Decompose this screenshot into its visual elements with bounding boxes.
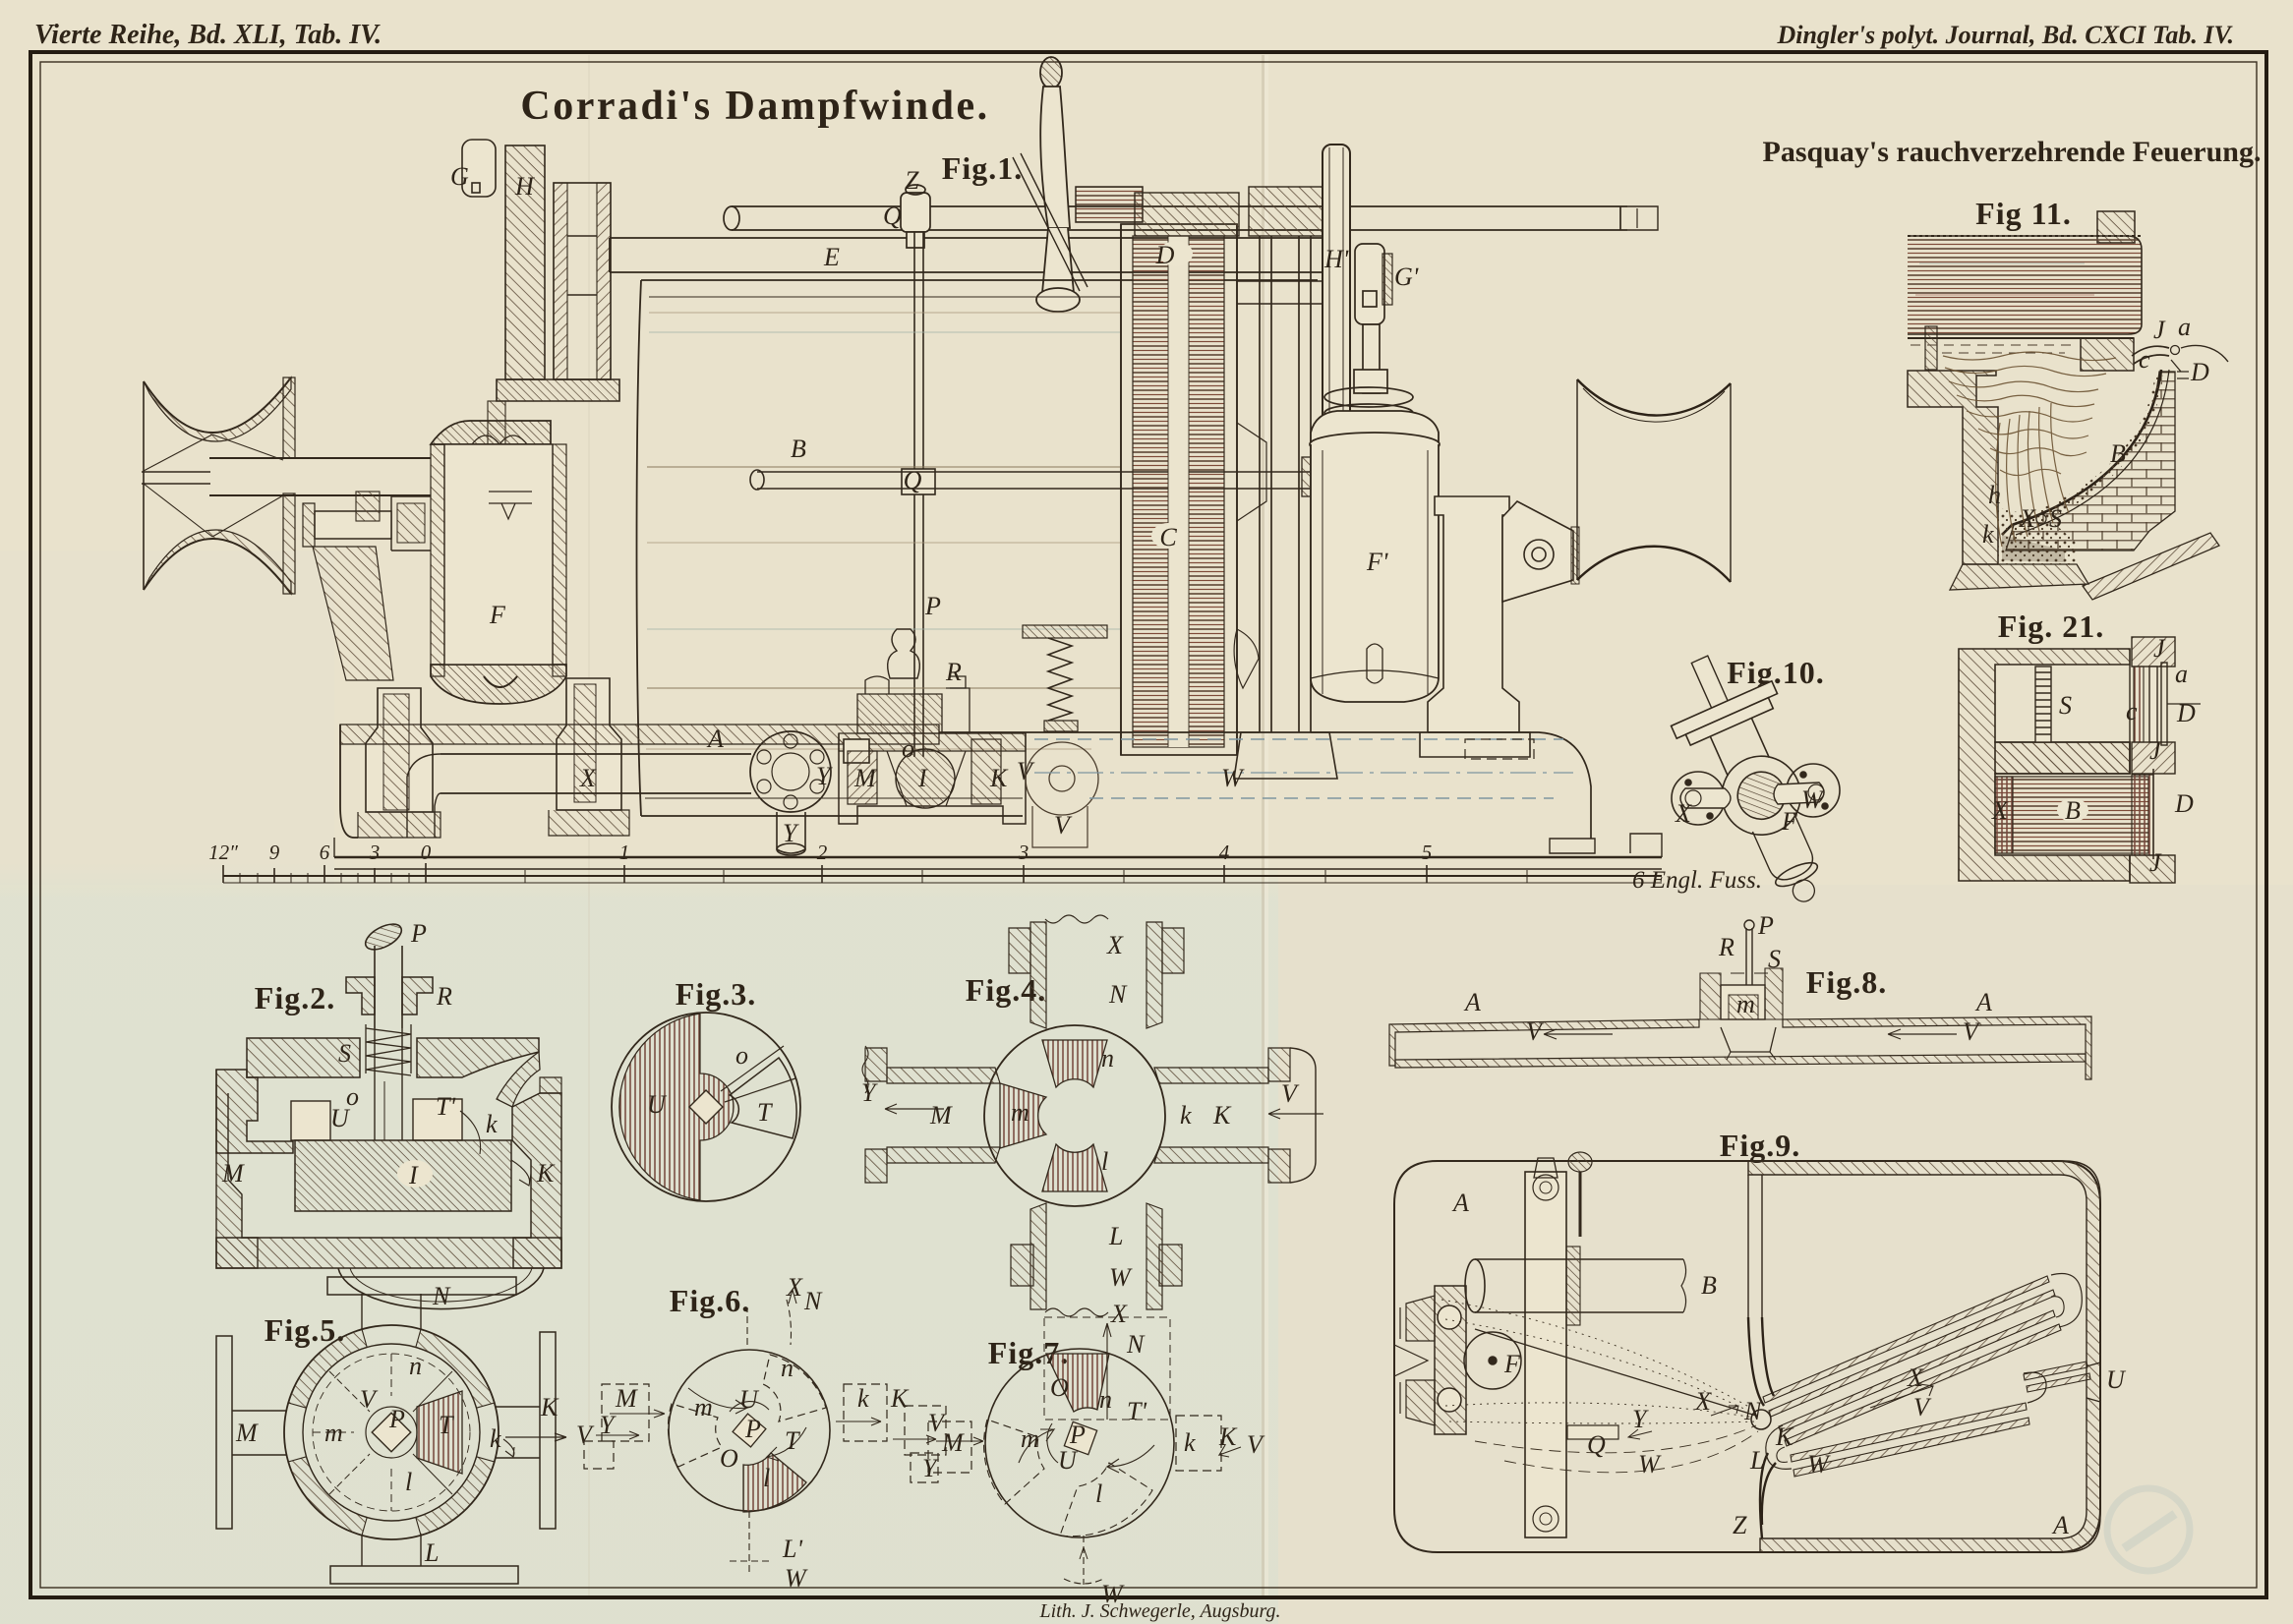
svg-text:K: K [1212, 1101, 1232, 1130]
svg-text:A: A [1451, 1189, 1469, 1217]
svg-text:Lʹ: Lʹ [782, 1535, 802, 1563]
svg-text:F: F [489, 601, 506, 629]
svg-text:R: R [1718, 933, 1734, 961]
svg-text:h: h [1988, 481, 2001, 509]
svg-text:N: N [1743, 1397, 1763, 1425]
svg-text:o: o [902, 734, 914, 763]
svg-text:l: l [1095, 1479, 1102, 1508]
svg-text:F: F [1781, 807, 1798, 836]
svg-text:Y: Y [816, 762, 833, 790]
svg-text:n: n [781, 1354, 794, 1382]
svg-text:P: P [1757, 911, 1774, 940]
svg-text:P: P [924, 592, 941, 620]
svg-text:X: X [1675, 799, 1692, 828]
svg-text:c: c [2126, 697, 2138, 725]
svg-text:F: F [1503, 1350, 1521, 1378]
svg-text:X: X [1110, 1300, 1128, 1328]
svg-text:C: C [1159, 523, 1177, 551]
svg-text:I: I [917, 764, 928, 792]
svg-text:Corradi's Dampfwinde.: Corradi's Dampfwinde. [520, 84, 989, 129]
svg-text:m: m [694, 1393, 713, 1421]
svg-text:m: m [324, 1419, 343, 1447]
svg-text:Q: Q [883, 202, 902, 230]
svg-text:U: U [647, 1090, 668, 1119]
svg-text:k: k [1180, 1101, 1192, 1130]
svg-text:k: k [1982, 520, 1994, 549]
svg-text:Y: Y [783, 819, 799, 847]
svg-text:B: B [2110, 439, 2126, 468]
svg-text:L: L [424, 1538, 439, 1567]
svg-text:Fʹ: Fʹ [1366, 548, 1388, 576]
svg-text:D: D [2174, 789, 2194, 818]
svg-text:M: M [941, 1428, 965, 1457]
svg-text:W: W [1109, 1263, 1133, 1292]
svg-text:U: U [2106, 1365, 2127, 1394]
svg-text:n: n [409, 1352, 422, 1380]
svg-text:M: M [235, 1419, 259, 1447]
svg-text:N: N [432, 1282, 451, 1310]
svg-text:k: k [1184, 1428, 1196, 1457]
svg-text:Z: Z [1733, 1511, 1747, 1539]
svg-text:W: W [1221, 764, 1245, 792]
svg-text:A: A [1974, 988, 1992, 1016]
svg-text:R: R [436, 982, 452, 1011]
svg-text:P: P [410, 919, 427, 948]
svg-text:Fig.8.: Fig.8. [1806, 964, 1887, 1000]
svg-text:R: R [945, 658, 962, 686]
svg-text:W: W [1638, 1450, 1662, 1479]
svg-text:6: 6 [320, 841, 330, 864]
svg-text:G: G [450, 162, 469, 191]
svg-text:a: a [2175, 660, 2188, 688]
svg-text:M: M [221, 1159, 245, 1188]
svg-text:Tʹ: Tʹ [436, 1092, 455, 1121]
svg-text:P: P [744, 1415, 761, 1443]
svg-text:Fig.1.: Fig.1. [942, 150, 1023, 186]
svg-text:Q: Q [904, 466, 922, 494]
svg-text:Lith. J. Schwegerle, Augsburg.: Lith. J. Schwegerle, Augsburg. [1039, 1600, 1281, 1622]
svg-text:Fig.3.: Fig.3. [676, 976, 756, 1012]
svg-text:B: B [1701, 1271, 1717, 1300]
svg-text:K: K [989, 764, 1009, 792]
svg-text:X: X [1991, 796, 2009, 825]
svg-text:M: M [853, 764, 877, 792]
svg-text:J: J [2153, 634, 2166, 663]
svg-text:D: D [2176, 699, 2196, 727]
svg-text:E: E [823, 243, 840, 271]
svg-text:D: D [2190, 358, 2209, 386]
svg-text:U: U [739, 1385, 760, 1414]
svg-text:X: X [786, 1273, 803, 1302]
svg-text:n: n [1099, 1385, 1112, 1414]
svg-text:o: o [735, 1041, 748, 1070]
svg-text:Fig.9.: Fig.9. [1720, 1128, 1800, 1163]
svg-text:Tʹ: Tʹ [1127, 1397, 1146, 1425]
svg-text:Q: Q [1587, 1430, 1606, 1459]
svg-text:Fig 11.: Fig 11. [1975, 196, 2072, 231]
svg-text:U: U [1058, 1446, 1079, 1475]
svg-text:Dingler's polyt. Journal, Bd.: Dingler's polyt. Journal, Bd. CXCI Tab. … [1776, 21, 2234, 49]
svg-text:D: D [1155, 241, 1175, 269]
svg-text:K: K [1775, 1422, 1794, 1451]
svg-text:O: O [720, 1444, 738, 1473]
svg-text:X: X [579, 764, 597, 792]
svg-text:Z: Z [905, 166, 919, 195]
svg-text:l: l [763, 1464, 770, 1492]
svg-text:l: l [405, 1468, 412, 1496]
svg-text:9: 9 [269, 841, 280, 864]
svg-text:4: 4 [1219, 841, 1230, 864]
svg-text:A: A [706, 725, 724, 753]
svg-text:K: K [540, 1393, 559, 1421]
svg-text:S: S [1768, 945, 1781, 973]
svg-text:N: N [1108, 980, 1128, 1009]
svg-text:a: a [2178, 313, 2191, 341]
svg-text:P: P [1069, 1421, 1086, 1449]
svg-text:N: N [1126, 1330, 1146, 1359]
svg-text:L: L [1749, 1446, 1764, 1475]
svg-text:2: 2 [817, 841, 828, 864]
svg-text:c: c [2139, 345, 2150, 374]
svg-text:J: J [2149, 736, 2162, 765]
svg-text:W: W [1801, 785, 1825, 814]
svg-text:T: T [757, 1098, 773, 1127]
svg-text:X: X [1106, 931, 1124, 959]
svg-text:k: k [490, 1424, 501, 1453]
svg-text:P: P [388, 1405, 405, 1433]
svg-text:S: S [2049, 504, 2062, 533]
svg-text:Y: Y [922, 1454, 939, 1482]
svg-text:W: W [785, 1564, 808, 1593]
svg-text:n: n [1101, 1044, 1114, 1073]
svg-text:m: m [1736, 990, 1755, 1018]
svg-text:Y: Y [861, 1078, 878, 1107]
svg-text:3: 3 [1018, 841, 1029, 864]
svg-text:O: O [1050, 1373, 1069, 1402]
svg-text:Pasquay's rauchverzehrende Feu: Pasquay's rauchverzehrende Feuerung. [1763, 136, 2262, 168]
svg-text:A: A [1463, 988, 1481, 1016]
svg-text:5: 5 [1422, 841, 1433, 864]
svg-text:W: W [1807, 1450, 1831, 1479]
svg-text:Hʹ: Hʹ [1323, 245, 1349, 273]
svg-text:L: L [1108, 1222, 1123, 1250]
svg-text:X: X [2019, 504, 2036, 533]
svg-text:k: k [857, 1384, 869, 1413]
svg-text:T: T [439, 1411, 454, 1439]
svg-text:B: B [2065, 796, 2081, 825]
svg-text:M: M [615, 1384, 638, 1413]
svg-text:12″: 12″ [208, 841, 238, 864]
svg-text:M: M [929, 1101, 953, 1130]
svg-text:K: K [1218, 1422, 1238, 1451]
svg-text:Y: Y [1632, 1405, 1649, 1433]
svg-text:X: X [1907, 1363, 1924, 1392]
svg-text:H: H [514, 172, 535, 201]
svg-text:A: A [2051, 1511, 2069, 1539]
svg-text:S: S [2059, 691, 2072, 720]
svg-text:k: k [486, 1110, 498, 1138]
svg-text:0: 0 [421, 841, 432, 864]
svg-text:o: o [346, 1082, 359, 1111]
svg-text:m: m [1021, 1424, 1039, 1453]
svg-text:m: m [1011, 1098, 1029, 1127]
svg-text:l: l [1101, 1147, 1108, 1176]
svg-text:K: K [536, 1159, 556, 1188]
svg-text:K: K [890, 1384, 910, 1413]
svg-text:Fig.2.: Fig.2. [255, 980, 335, 1015]
svg-text:Fig. 21.: Fig. 21. [1998, 609, 2104, 644]
svg-text:I: I [408, 1161, 419, 1189]
svg-text:Fig.10.: Fig.10. [1727, 655, 1824, 690]
svg-text:J: J [2149, 848, 2162, 877]
svg-text:3: 3 [369, 841, 381, 864]
svg-text:T: T [785, 1426, 800, 1455]
svg-text:Fig.6.: Fig.6. [670, 1283, 750, 1318]
svg-text:1: 1 [619, 841, 630, 864]
svg-text:Vierte Reihe, Bd. XLI, Tab. IV: Vierte Reihe, Bd. XLI, Tab. IV. [34, 20, 382, 50]
svg-text:N: N [803, 1287, 823, 1315]
svg-text:J: J [2153, 316, 2166, 344]
svg-text:6 Engl. Fuss.: 6 Engl. Fuss. [1632, 867, 1762, 894]
svg-text:X: X [1694, 1387, 1712, 1416]
svg-text:B: B [791, 435, 806, 463]
svg-text:Gʹ: Gʹ [1394, 262, 1419, 291]
